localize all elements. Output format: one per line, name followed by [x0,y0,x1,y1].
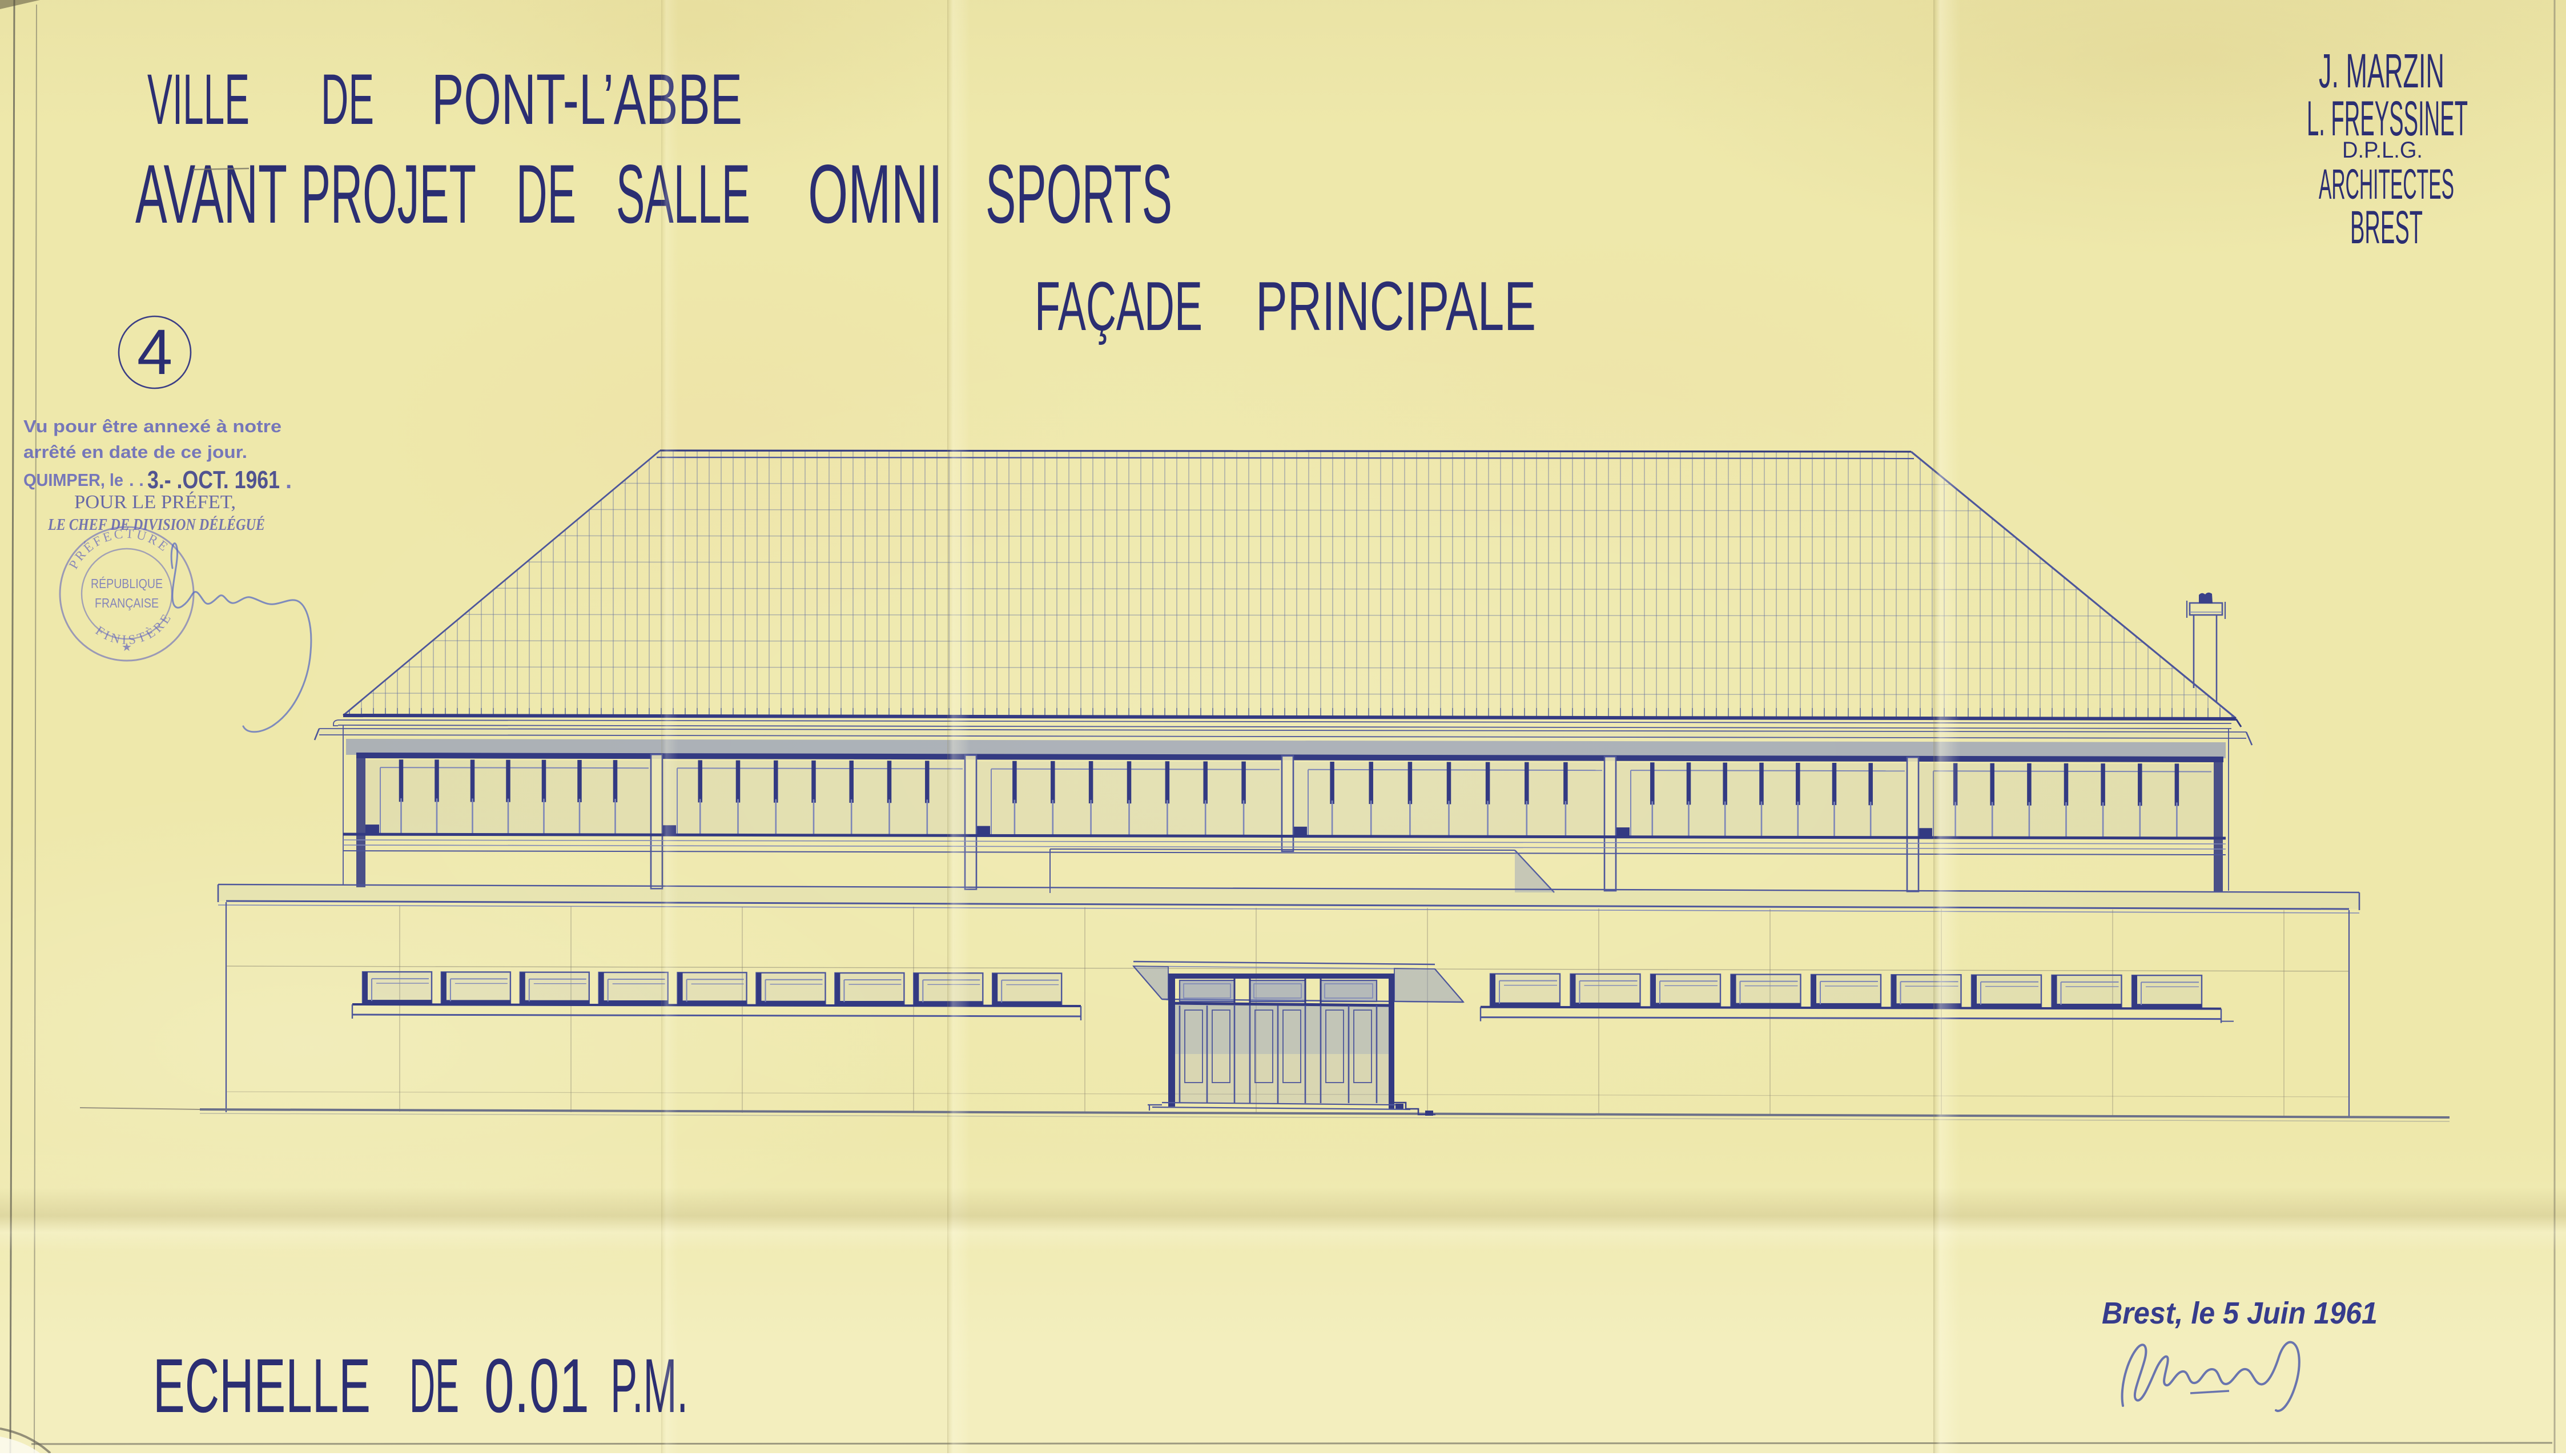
svg-text:SALLE: SALLE [616,147,750,240]
svg-text:ARCHITECTES: ARCHITECTES [2319,160,2454,208]
svg-text:4: 4 [137,316,172,388]
svg-text:DE: DE [321,60,374,139]
svg-text:FAÇADE: FAÇADE [1035,267,1202,345]
svg-text:LE CHEF DE DIVISION DÉLÉGUÉ: LE CHEF DE DIVISION DÉLÉGUÉ [47,515,265,534]
svg-text:J. MARZIN: J. MARZIN [2319,44,2444,98]
svg-text:. .: . . [129,470,144,490]
svg-text:RÉPUBLIQUE: RÉPUBLIQUE [91,576,163,591]
svg-text:Brest, le 5 Juin 1961: Brest, le 5 Juin 1961 [2102,1296,2378,1330]
svg-text:FINISTÈRE: FINISTÈRE [93,609,175,647]
svg-text:Vu pour être annexé à notre: Vu pour être annexé à notre [23,416,281,436]
svg-text:PRINCIPALE: PRINCIPALE [1256,267,1536,345]
svg-text:POUR LE PRÉFET,: POUR LE PRÉFET, [74,492,236,513]
svg-text:VILLE: VILLE [147,60,250,139]
svg-text:★: ★ [122,641,132,654]
svg-text:D.P.L.G.: D.P.L.G. [2342,138,2423,163]
svg-text:AVANT: AVANT [135,147,287,240]
svg-text:SPORTS: SPORTS [986,147,1172,240]
svg-text:.: . [285,468,292,493]
svg-text:PROJET: PROJET [301,147,476,240]
svg-text:3.- .OCT. 1961: 3.- .OCT. 1961 [147,466,280,494]
svg-text:OMNI: OMNI [808,147,943,240]
svg-text:arrêté en date de ce jour.: arrêté en date de ce jour. [23,442,247,462]
svg-text:FRANÇAISE: FRANÇAISE [95,596,159,610]
svg-text:BREST: BREST [2350,202,2423,254]
svg-text:QUIMPER, le: QUIMPER, le [23,470,123,490]
svg-text:DE: DE [409,1344,459,1429]
svg-text:DE: DE [516,147,576,240]
svg-text:PONT-L’ABBE: PONT-L’ABBE [432,60,742,139]
svg-text:ECHELLE: ECHELLE [153,1344,371,1429]
svg-text:0.01: 0.01 [484,1344,589,1429]
